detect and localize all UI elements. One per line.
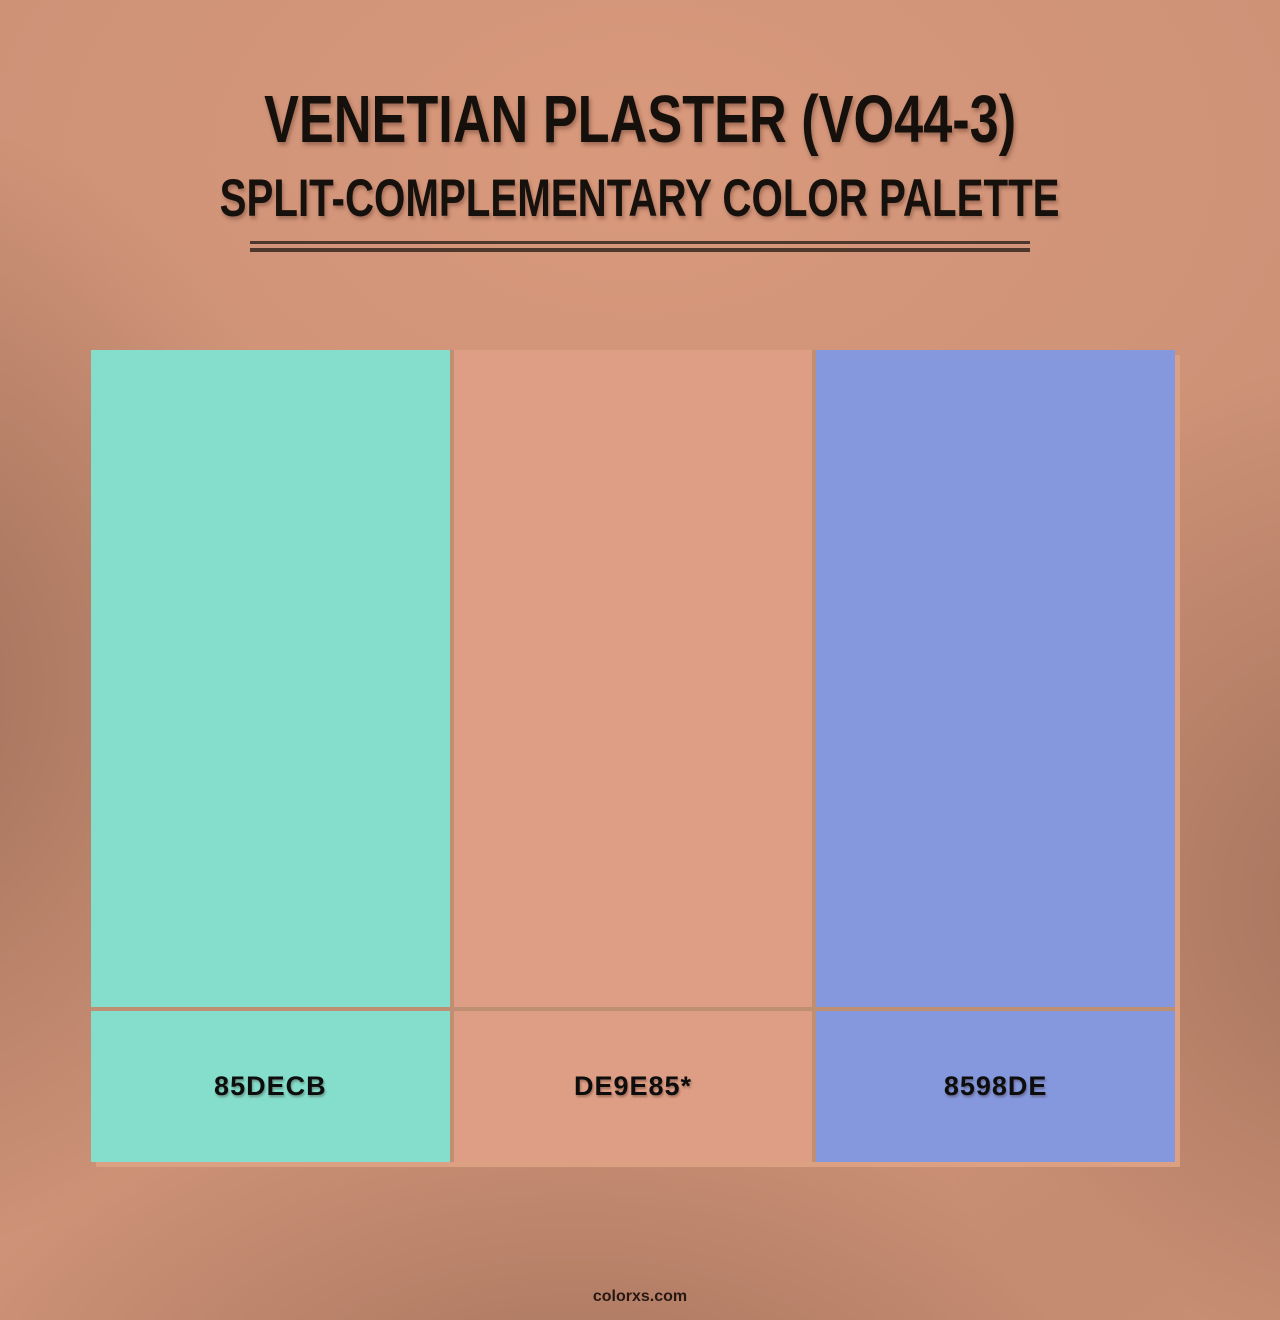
swatch-main-2 (454, 350, 813, 1007)
site-credit-text: colorxs.com (593, 1288, 687, 1305)
page-title-text: VENETIAN PLASTER (VO44-3) (264, 86, 1016, 153)
hex-label-2: DE9E85* (574, 1071, 692, 1102)
swatch-label-1: 85DECB (91, 1011, 450, 1162)
page-subtitle-text: SPLIT-COMPLEMENTARY COLOR PALETTE (220, 172, 1060, 225)
hex-label-3: 8598DE (944, 1071, 1048, 1102)
palette-grid: 85DECB DE9E85* 8598DE (91, 350, 1175, 1162)
swatch-main-3 (816, 350, 1175, 1007)
site-credit: colorxs.com (0, 1288, 1280, 1306)
swatch-label-2: DE9E85* (454, 1011, 813, 1162)
divider-rule (250, 241, 1030, 252)
page-subtitle: SPLIT-COMPLEMENTARY COLOR PALETTE (0, 172, 1280, 225)
hex-label-1: 85DECB (214, 1071, 327, 1102)
swatch-main-1 (91, 350, 450, 1007)
swatch-label-3: 8598DE (816, 1011, 1175, 1162)
page-title: VENETIAN PLASTER (VO44-3) (0, 86, 1280, 153)
